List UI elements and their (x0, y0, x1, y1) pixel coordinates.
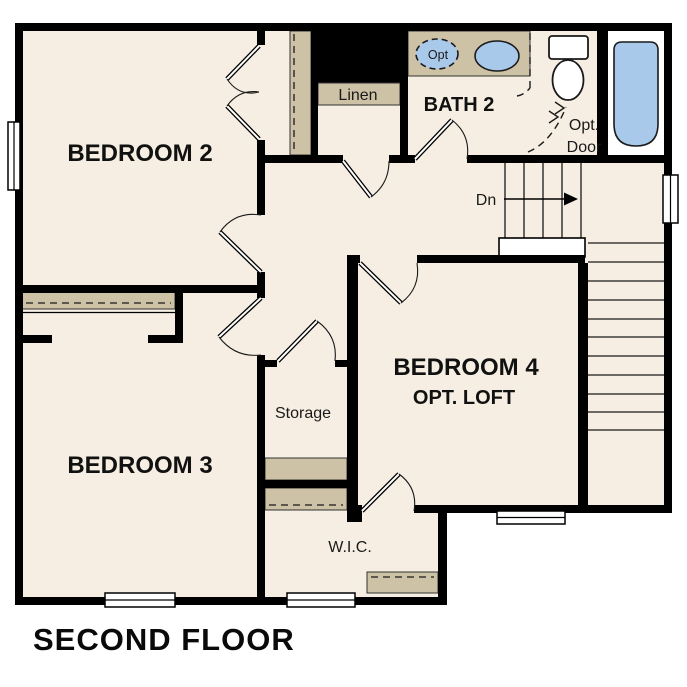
window-hall-bottom (287, 593, 355, 607)
stair-direction-label: Dn (476, 192, 496, 209)
optional-door-label-line1: Opt. (569, 117, 599, 134)
window-bedroom3-bottom (105, 593, 175, 607)
room-label-bedroom2: BEDROOM 2 (67, 140, 212, 167)
sink-icon (475, 41, 519, 71)
optional-door-label-line2: Door (567, 139, 602, 156)
stair-landing (499, 238, 585, 257)
toilet-tank-icon (549, 36, 588, 59)
room-label-wic: W.I.C. (328, 539, 372, 556)
bathtub-icon (614, 42, 658, 146)
room-sublabel-opt-loft: OPT. LOFT (413, 387, 515, 409)
optional-sink-label: Opt (428, 48, 449, 62)
window-bedroom4-bottom (497, 511, 565, 524)
void-area (313, 31, 408, 83)
room-label-bedroom4: BEDROOM 4 (393, 354, 539, 381)
window-bedroom2-left (8, 122, 20, 190)
room-label-storage: Storage (275, 405, 331, 422)
room-label-linen: Linen (338, 87, 377, 104)
window-stairwell-right (663, 175, 678, 223)
floor-area (15, 23, 672, 605)
toilet-bowl-icon (553, 60, 584, 100)
floor-plan: BEDROOM 2 BEDROOM 3 BEDROOM 4 OPT. LOFT … (0, 0, 687, 687)
page-title: SECOND FLOOR (33, 622, 295, 657)
room-label-bath2: BATH 2 (424, 94, 495, 116)
room-label-bedroom3: BEDROOM 3 (67, 452, 212, 479)
